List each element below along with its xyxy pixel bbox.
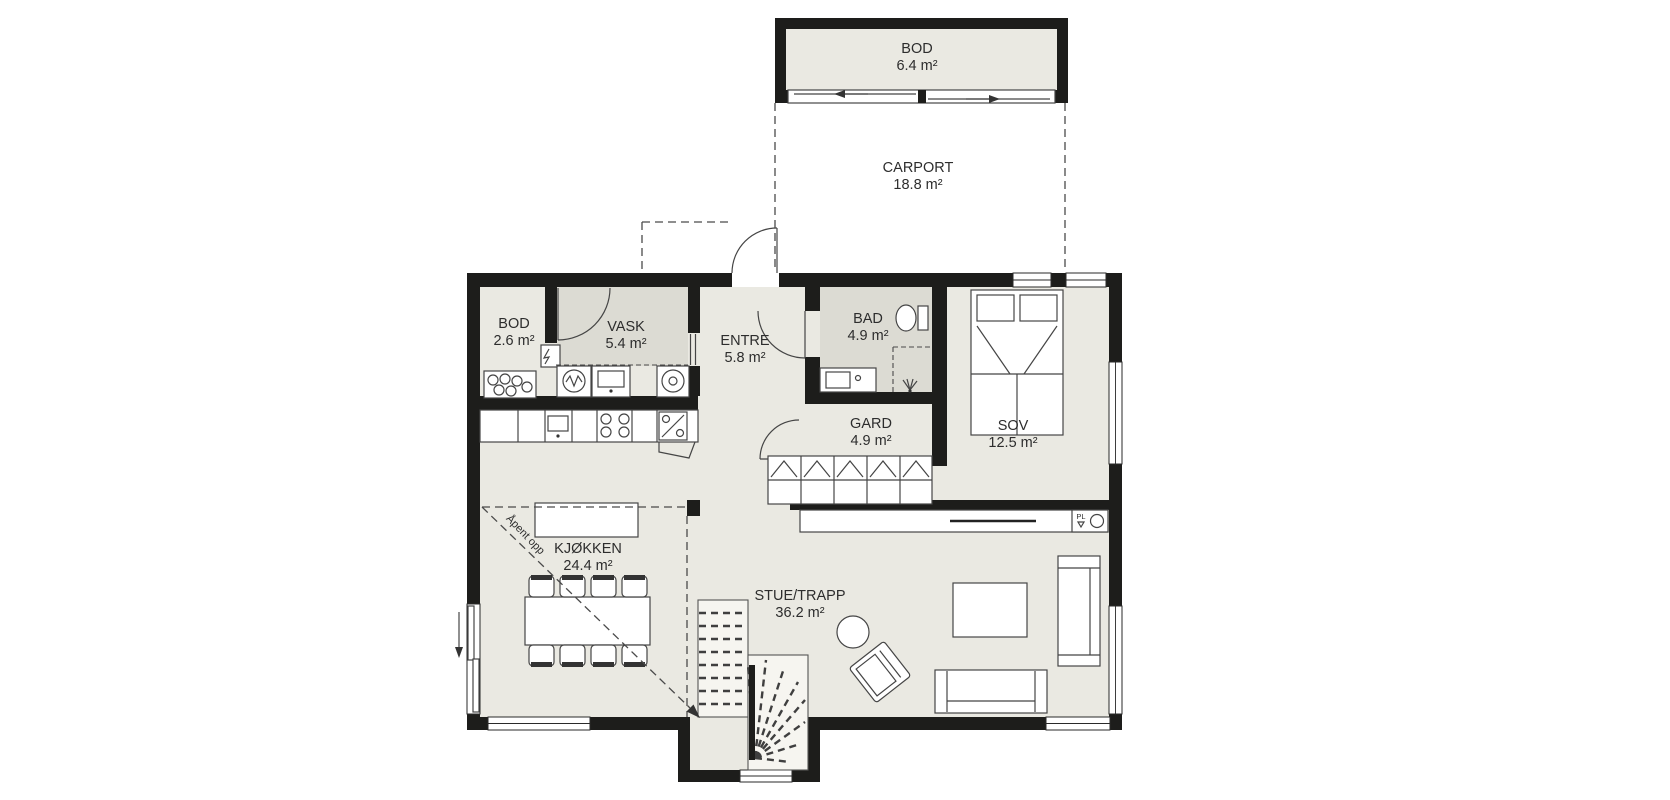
room-name-carport: CARPORT xyxy=(883,160,954,176)
floor-plan: PL xyxy=(0,0,1670,800)
coffee-table xyxy=(953,583,1027,637)
dishwasher xyxy=(659,412,687,440)
room-name-sov: SOV xyxy=(998,418,1029,434)
toilet xyxy=(896,305,928,331)
room-area-vask: 5.4 m² xyxy=(605,336,646,352)
room-name-kjokken: KJØKKEN xyxy=(554,541,622,557)
bedroom-bed xyxy=(971,290,1063,435)
room-name-bad: BAD xyxy=(853,311,883,327)
room-name-stue: STUE/TRAPP xyxy=(754,588,845,604)
floorplan-canvas: PL xyxy=(0,0,1670,800)
room-area-bod: 2.6 m² xyxy=(493,333,534,349)
room-name-bod-top: BOD xyxy=(901,41,932,57)
room-name-bod: BOD xyxy=(498,316,529,332)
sofa-2 xyxy=(1058,556,1100,666)
dining-table xyxy=(525,597,650,645)
electrical-panel xyxy=(541,345,560,367)
entrance-door xyxy=(732,228,779,287)
bathroom-vanity xyxy=(820,368,876,392)
room-area-gard: 4.9 m² xyxy=(850,433,891,449)
tech-cabinet: PL xyxy=(1072,510,1108,532)
stair-newel xyxy=(749,665,755,760)
patio-sliding-door xyxy=(455,604,480,714)
carport xyxy=(642,103,1065,272)
side-table xyxy=(837,616,869,648)
storage-shelf xyxy=(484,371,536,398)
wardrobes xyxy=(768,456,932,504)
room-area-bod-top: 6.4 m² xyxy=(896,58,937,74)
room-name-vask: VASK xyxy=(607,319,645,335)
tech-cabinet-label: PL xyxy=(1076,512,1085,521)
room-name-gard: GARD xyxy=(850,416,892,432)
kitchen-island xyxy=(535,503,638,537)
closet-strip: PL xyxy=(800,510,1108,532)
room-area-bad: 4.9 m² xyxy=(847,328,888,344)
sofa xyxy=(935,670,1047,713)
room-area-carport: 18.8 m² xyxy=(893,177,942,193)
room-area-sov: 12.5 m² xyxy=(988,435,1037,451)
room-area-stue: 36.2 m² xyxy=(775,605,824,621)
room-area-entre: 5.8 m² xyxy=(724,350,765,366)
room-area-kjokken: 24.4 m² xyxy=(563,558,612,574)
room-name-entre: ENTRE xyxy=(720,333,769,349)
